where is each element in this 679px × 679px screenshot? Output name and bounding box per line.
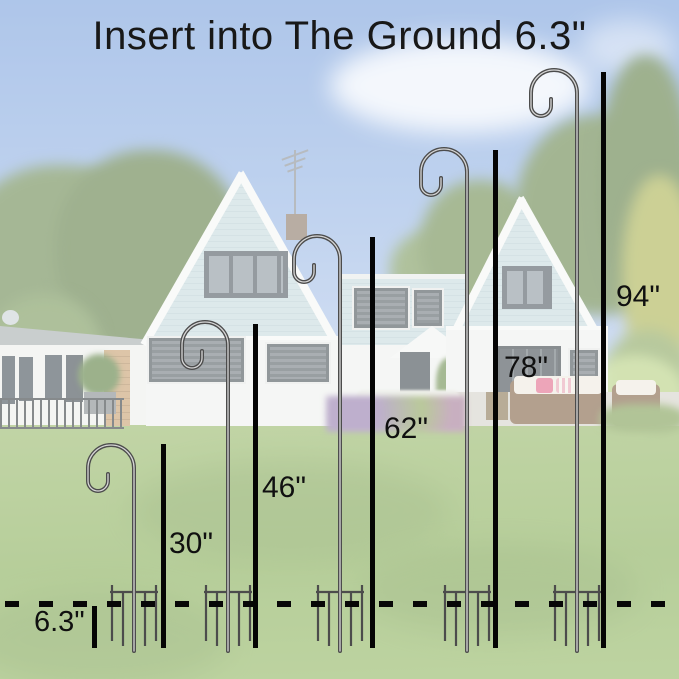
measure-line-78 [493,150,498,648]
height-label-30: 30" [169,527,213,561]
measure-line-30 [161,444,166,648]
title: Insert into The Ground 6.3" [0,14,679,59]
measure-line-62 [370,237,375,648]
pole [421,149,467,651]
measure-line-46 [253,324,258,648]
shepherd-hook-62 [294,236,364,651]
product-diagram: Insert into The Ground 6.3" 6.3" 30"46"6… [0,0,679,679]
height-label-62: 62" [384,412,428,446]
height-label-46: 46" [262,471,306,505]
height-label-78: 78" [504,351,548,385]
shepherd-hook-30 [88,445,158,651]
depth-tick-line [92,606,97,648]
shepherd-hook-78 [421,149,491,651]
pole-highlight [421,149,467,651]
ground-line [5,601,675,607]
measure-line-94 [601,72,606,648]
shepherd-hooks-illustration [0,0,679,679]
height-label-94: 94" [616,280,660,314]
insert-depth-label: 6.3" [34,606,85,639]
